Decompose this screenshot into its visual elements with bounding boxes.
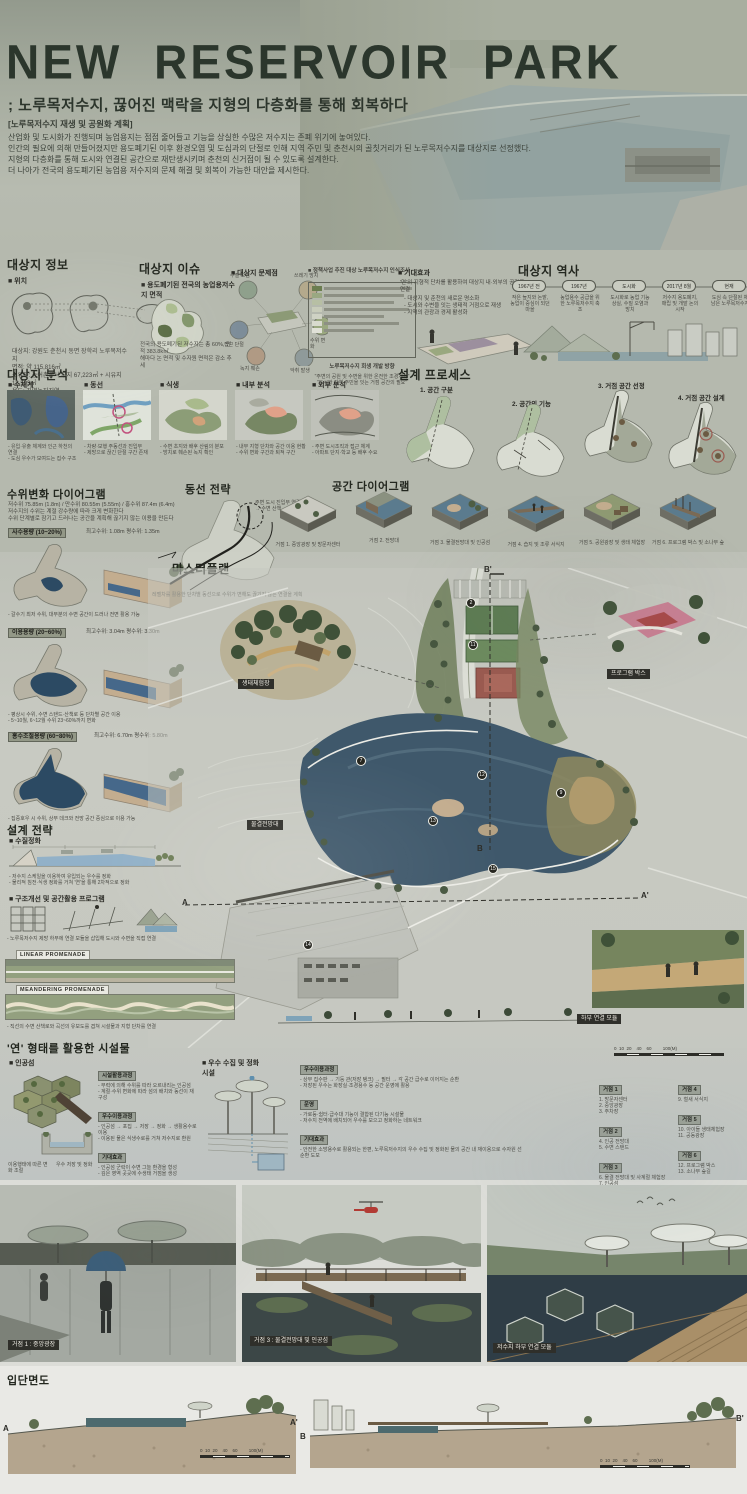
project-tag: [노루목저수지 재생 및 공원화 계획] bbox=[8, 118, 133, 130]
render2-caption: 거점 3 : 물결전망대 및 인공섬 bbox=[250, 1336, 332, 1346]
plan-chip-module: 하부 연결 모듈 bbox=[577, 1014, 621, 1024]
space-iso-4 bbox=[504, 492, 568, 540]
space-caption-2: 거점 2. 전망대 bbox=[344, 538, 424, 544]
timeline-desc-1: 작은 늪지와 논밭, 농업이 중심이 되던 마을 bbox=[510, 295, 550, 313]
analysis-map5-label: ■ 외부 분석 bbox=[312, 380, 346, 390]
space-caption-3: 거점 3. 물결전망대 및 인공섬 bbox=[420, 540, 500, 546]
legend-group-4-tag: 거점 4 bbox=[678, 1085, 701, 1095]
plan-chip-program: 프로그램 박스 bbox=[607, 669, 650, 679]
effect-axon bbox=[398, 320, 538, 370]
rain-b2-text: - 가로등·쉼터·급수대 기능이 결합된 다기능 시설물 - 저수지 전역에 배… bbox=[300, 1112, 522, 1124]
lotus-b1-tag: 시설활용과정 bbox=[98, 1071, 136, 1081]
plan-scale-bar bbox=[614, 1053, 724, 1056]
problem-3: 접근 단절 bbox=[224, 342, 244, 348]
linear-promenade-diagram bbox=[5, 959, 235, 983]
design-process-title: 설계 프로세스 bbox=[398, 366, 471, 383]
legend-group-5-items: 10. 아이들 생태체험장 11. 공동광장 bbox=[678, 1127, 746, 1139]
section-a-scale-text: 0 10 20 40 60 100(M) bbox=[200, 1448, 263, 1453]
space-caption-4: 거점 4. 습지 및 조류 서식지 bbox=[496, 542, 576, 548]
plan-label-a2: A' bbox=[641, 891, 649, 900]
space-caption-1: 거점 1. 중앙광장 및 방문자센터 bbox=[268, 542, 348, 548]
section-b-label: B bbox=[300, 1432, 306, 1441]
analysis-map5-note: - 주변 도시조직과 접근 체계 - 아파트 단지·학교 등 배후 수요 bbox=[312, 444, 382, 456]
lotus-title: '연' 형태를 활용한 시설물 bbox=[7, 1040, 130, 1056]
site-history-title: 대상지 역사 bbox=[518, 262, 580, 279]
lotus-b2-tag: 우수이용과정 bbox=[98, 1112, 136, 1122]
intro-paragraph: 산업화 및 도시화가 진행되며 농업용지는 점점 줄어들고 기능을 상실한 수많… bbox=[8, 132, 568, 176]
analysis-map2-note: - 차량·보행 주동선과 진입부 - 제방으로 끊긴 단절 구간 존재 bbox=[84, 444, 154, 456]
legend-group-2-items: 4. 인공 전망대 5. 수변 스탠드 bbox=[599, 1139, 675, 1151]
timeline-desc-3: 도시화로 농업 기능 상실, 수질 오염과 방치 bbox=[610, 295, 650, 313]
strategy-s1-note: - 저수지 스케일을 이용하여 유입되는 우수를 정화 - 물리적 침전·식생 … bbox=[9, 874, 184, 886]
space-iso-1 bbox=[276, 492, 340, 540]
rain-b1-tag: 우수이용과정 bbox=[300, 1065, 338, 1075]
plan-marker-14: 14 bbox=[303, 940, 313, 950]
strategy-s2-note: - 노루목저수지 제방 하부에 연결 모듈을 삽입해 도시와 수변을 직접 연결 bbox=[7, 936, 182, 942]
rain-text-column: 우수이용과정- 상부 집수판 → 기둥 관(저장 탱크) → 필터 → 각 공간… bbox=[300, 1058, 522, 1159]
legend-group-1-tag: 거점 1 bbox=[599, 1085, 622, 1095]
rain-b2-tag: 운영 bbox=[300, 1100, 318, 1110]
island-axon bbox=[4, 1068, 96, 1130]
lotus-b3-text: - 인공섬 군락이 수변 그늘 환경을 형성 - 깊은 영역 곳곳에 수생태 거… bbox=[98, 1165, 198, 1177]
masterplan-map bbox=[148, 568, 747, 1048]
poster-board: NEW RESERVOIR PARK ; 노루목저수지, 끊어진 맥락을 지형의… bbox=[0, 0, 747, 1494]
timeline-node-4: 2017년 8월 bbox=[662, 280, 696, 292]
rendering-1 bbox=[0, 1185, 236, 1362]
legend-group-6-tag: 거점 6 bbox=[678, 1151, 701, 1161]
history-illustration bbox=[518, 312, 746, 368]
rain-b3-text: - 안전한 소방용수로 활용되는 한편, 노루목저수지의 우수 수집 및 정화된… bbox=[300, 1147, 522, 1159]
section-a-label: A bbox=[3, 1424, 9, 1433]
plan-label-b2: B' bbox=[484, 565, 492, 574]
lotus-b3-tag: 기대효과 bbox=[98, 1153, 126, 1163]
plan-label-b: B bbox=[477, 844, 483, 853]
analysis-map5 bbox=[311, 390, 379, 440]
process-step2-diagram bbox=[488, 400, 572, 490]
water-level-title: 수위변화 다이어그램 bbox=[7, 486, 106, 502]
timeline-node-1: 1967년 전 bbox=[512, 280, 546, 292]
plan-scale-text: 0 10 20 40 60 100(M) bbox=[614, 1046, 677, 1051]
legend-group-2: 거점 24. 인공 전망대 5. 수변 스탠드 bbox=[599, 1120, 675, 1151]
render3-caption: 저수지 하부 연결 모듈 bbox=[493, 1343, 556, 1353]
section-a2-label: A' bbox=[290, 1418, 298, 1427]
plan-marker-12: 12 bbox=[477, 770, 487, 780]
island-caption-1: 이용행태에 따른 변화 조절 bbox=[8, 1162, 52, 1174]
section-b-scale-text: 0 10 20 40 60 100(M) bbox=[600, 1458, 663, 1463]
render1-caption: 거점 1 : 중앙광장 bbox=[8, 1340, 59, 1350]
process-step3-diagram bbox=[576, 386, 660, 476]
timeline-desc-2: 농업용수 공급을 위한 노루목저수지 축조 bbox=[560, 295, 600, 313]
issue-map-note: 전국의 용도폐기된 저수지는 총 60%, 면적 383.8k㎡ 해마다 논 면… bbox=[140, 342, 235, 370]
analysis-map3-label: ■ 식생 bbox=[160, 380, 179, 390]
timeline-node-5: 현재 bbox=[712, 280, 746, 292]
rendering-3 bbox=[487, 1185, 747, 1362]
analysis-map1-note: - 유입·유출 체계와 인근 하천의 연결 - 도심 우수가 모여드는 집수 구… bbox=[8, 444, 78, 462]
problem-5: 녹지 훼손 bbox=[240, 366, 260, 372]
legend-group-6: 거점 612. 프로그램 박스 13. 소나무 숲길 bbox=[678, 1144, 746, 1175]
space-caption-6: 거점 6. 프로그램 박스 및 소나무 숲 bbox=[648, 540, 728, 546]
analysis-map1 bbox=[7, 390, 75, 440]
purification-section bbox=[5, 844, 185, 872]
effect-lead: '연'의 지형적 단차를 활용하여 대상지 내·외부의 공간을 연결 bbox=[400, 280, 530, 294]
plan-marker-13: 13 bbox=[428, 816, 438, 826]
problem-1: 수질 오염 bbox=[230, 273, 250, 279]
history-scene bbox=[518, 312, 746, 368]
analysis-map4-note: - 내부 지형 단차와 공간 이용 현황 - 수위 변화 구간과 퇴적 구간 bbox=[236, 444, 306, 456]
section-b-scale-bar bbox=[600, 1465, 690, 1468]
structure-diagrams bbox=[5, 903, 185, 935]
lotus-b1-text: - 부력에 의해 수위를 따라 오르내리는 인공섬 - 계절·수위 변화에 따라… bbox=[98, 1083, 198, 1101]
rain-b1-text: - 상부 집수판 → 기둥 관(저장 탱크) → 필터 → 각 공간 급수로 이… bbox=[300, 1077, 522, 1089]
space-iso-2 bbox=[352, 488, 416, 536]
section-a-scale-bar bbox=[200, 1455, 290, 1458]
section-b2-label: B' bbox=[736, 1414, 744, 1423]
poster-subtitle: ; 노루목저수지, 끊어진 맥락을 지형의 다층화를 통해 회복하다 bbox=[8, 94, 408, 115]
analysis-map4-label: ■ 내부 분석 bbox=[236, 380, 270, 390]
site-issue-title: 대상지 이슈 bbox=[139, 260, 201, 277]
timeline-node-2: 1967년 bbox=[562, 280, 596, 292]
effect-diagram bbox=[398, 320, 538, 370]
analysis-map2 bbox=[83, 390, 151, 440]
legend-group-4-items: 9. 철새 서식지 bbox=[678, 1097, 746, 1103]
analysis-map2-label: ■ 동선 bbox=[84, 380, 103, 390]
water-block3-plan bbox=[5, 744, 97, 814]
plan-marker-11: 11 bbox=[468, 640, 478, 650]
island-pond-section bbox=[38, 1132, 96, 1158]
island-caption-2: 우수 저장 및 정화 bbox=[56, 1162, 96, 1168]
water-block2-plan bbox=[5, 640, 97, 710]
legend-group-5-tag: 거점 5 bbox=[678, 1115, 701, 1125]
plan-marker-2: 2 bbox=[466, 598, 476, 608]
legend-group-1: 거점 11. 방문자센터 2. 중앙광장 3. 주차장 bbox=[599, 1078, 675, 1115]
analysis-map3-note: - 수변 초지와 배후 산림의 분포 - 방치로 훼손된 녹지 확인 bbox=[160, 444, 230, 456]
plan-chip-wave: 물결전망대 bbox=[247, 820, 283, 830]
meandering-promenade-diagram bbox=[5, 994, 235, 1020]
plan-marker-15: 15 bbox=[488, 864, 498, 874]
promenade-note: - 직선의 수변 산책로와 곡선의 유보도를 겹쳐 시설물과 지형 단차를 연결 bbox=[7, 1024, 227, 1030]
rain-facility-label: ■ 우수 수집 및 정화 시설 bbox=[202, 1058, 264, 1078]
analysis-map4 bbox=[235, 390, 303, 440]
site-info-location-label: ■ 위치 bbox=[8, 276, 27, 286]
section-a-drawing bbox=[4, 1386, 300, 1476]
legend-group-4: 거점 49. 철새 서식지 bbox=[678, 1078, 746, 1103]
legend-group-1-items: 1. 방문자센터 2. 중앙광장 3. 주차장 bbox=[599, 1097, 675, 1115]
legend-column-1: 거점 11. 방문자센터 2. 중앙광장 3. 주차장 거점 24. 인공 전망… bbox=[599, 1078, 675, 1193]
site-info-title: 대상지 정보 bbox=[7, 256, 69, 273]
legend-group-3-tag: 거점 3 bbox=[599, 1163, 622, 1173]
legend-group-5: 거점 510. 아이들 생태체험장 11. 공동광장 bbox=[678, 1108, 746, 1139]
timeline-node-3: 도시화 bbox=[612, 280, 646, 292]
process-step1-diagram bbox=[398, 392, 482, 482]
water-block3-tag: 홍수조절용량 (60~80%) bbox=[8, 732, 77, 742]
space-caption-5: 거점 5. 공원광장 및 생태 체험장 bbox=[572, 540, 652, 546]
rain-b3-tag: 기대효과 bbox=[300, 1135, 328, 1145]
lotus-b2-text: - 인공섬 → 포집 → 저장 → 정화 → 생활용수로 이용 - 이용된 물은… bbox=[98, 1124, 198, 1142]
history-timeline: 1967년 전 1967년 도시화 2017년 8월 현재 작은 늪지와 논밭,… bbox=[512, 280, 747, 310]
water-block1-plan bbox=[5, 540, 97, 610]
lotus-island-label: ■ 인공섬 bbox=[9, 1058, 35, 1068]
timeline-desc-4: 저수지 용도폐지, 매립 및 개발 논의 시작 bbox=[660, 295, 700, 313]
plan-marker-9: 9 bbox=[556, 788, 566, 798]
effect-label: ■ 기대효과 bbox=[398, 268, 430, 278]
legend-group-6-items: 12. 프로그램 박스 13. 소나무 숲길 bbox=[678, 1163, 746, 1175]
space-iso-6 bbox=[656, 490, 720, 538]
process-step4-diagram bbox=[660, 398, 744, 488]
water-block1-tag: 사수용량 (10~20%) bbox=[8, 528, 66, 538]
space-iso-5 bbox=[580, 490, 644, 538]
water-block2-tag: 이용용량 (20~60%) bbox=[8, 628, 66, 638]
legend-group-2-tag: 거점 2 bbox=[599, 1127, 622, 1137]
analysis-map3 bbox=[159, 390, 227, 440]
timeline-desc-5: 도심 속 단절된 채 남은 노루목저수지 bbox=[710, 295, 747, 307]
poster-title: NEW RESERVOIR PARK bbox=[6, 34, 622, 90]
plan-chip-eco: 생태체험장 bbox=[238, 679, 274, 689]
analysis-map1-label: ■ 수체계 bbox=[8, 380, 34, 390]
section-b-drawing bbox=[308, 1392, 740, 1472]
water-block1-stat: 최고수위: 1.08m 평수위: 1.35m bbox=[86, 529, 160, 536]
rain-facility-diagram bbox=[204, 1076, 292, 1176]
masterplan-drawing bbox=[148, 568, 747, 1048]
space-iso-3 bbox=[428, 490, 492, 538]
plan-marker-7: 7 bbox=[356, 756, 366, 766]
